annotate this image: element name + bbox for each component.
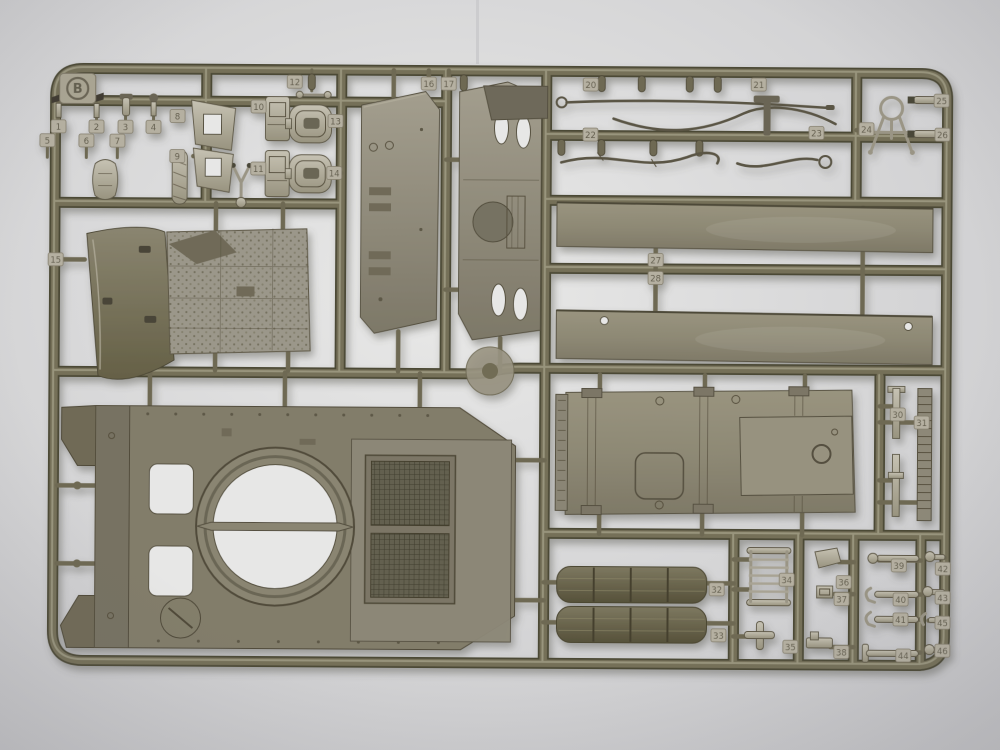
part-number-tag: 6 <box>79 134 94 147</box>
part-number-tag: 36 <box>836 576 851 589</box>
part-number-tag: 1 <box>51 120 66 133</box>
part-serrated-rack <box>917 389 932 521</box>
part-number-tag: 4 <box>146 120 161 133</box>
svg-text:11: 11 <box>253 165 264 175</box>
part-number-tag: 40 <box>893 593 908 606</box>
part-number-tag: 28 <box>648 271 663 284</box>
svg-text:26: 26 <box>937 131 948 141</box>
svg-text:20: 20 <box>585 81 596 91</box>
svg-text:37: 37 <box>836 595 847 605</box>
part-number-tag: 25 <box>934 94 949 107</box>
part-canteen-5 <box>93 160 118 200</box>
part-number-tag: 20 <box>583 78 598 91</box>
part-number-tag: 45 <box>935 616 950 629</box>
part-fender-28 <box>556 310 932 364</box>
part-box-37 <box>817 586 833 598</box>
part-cylinder-25 <box>908 96 938 103</box>
svg-text:2: 2 <box>94 123 99 133</box>
part-textured-plate <box>166 228 311 355</box>
part-number-tag: 17 <box>441 77 456 90</box>
svg-text:41: 41 <box>895 616 906 626</box>
part-fender-27 <box>557 202 933 252</box>
part-number-tag: 8 <box>170 109 185 122</box>
svg-text:27: 27 <box>650 256 661 266</box>
part-hatch-13 <box>285 105 331 143</box>
part-number-tag: 37 <box>834 593 849 606</box>
part-number-tag: 7 <box>110 134 125 147</box>
part-engine-deck <box>555 385 856 516</box>
part-log-bundle-33 <box>556 606 706 643</box>
part-number-tag: 27 <box>648 253 663 266</box>
svg-text:8: 8 <box>175 112 180 122</box>
svg-text:17: 17 <box>443 80 454 90</box>
svg-text:30: 30 <box>892 411 903 421</box>
part-number-tag: 9 <box>170 149 185 162</box>
part-number-tag: 10 <box>251 100 266 113</box>
part-cylinder-26 <box>907 130 937 137</box>
svg-text:12: 12 <box>289 78 300 88</box>
svg-text:21: 21 <box>753 81 764 91</box>
svg-text:46: 46 <box>937 647 948 657</box>
part-number-tag: 41 <box>893 613 908 626</box>
photo-stage: B 12345678910111213141516172021222324252… <box>0 0 1000 750</box>
part-number-tag: 39 <box>891 559 906 572</box>
svg-text:40: 40 <box>895 596 906 606</box>
part-number-tag: 44 <box>896 649 911 662</box>
part-long-plate <box>360 91 439 333</box>
svg-text:45: 45 <box>937 619 948 629</box>
part-hull-roof <box>60 405 515 650</box>
frame-letter-tag: B <box>60 73 96 103</box>
part-number-tag: 38 <box>834 646 849 659</box>
frame-letter: B <box>73 82 83 97</box>
part-number-tag: 34 <box>779 573 794 586</box>
svg-text:31: 31 <box>916 419 927 429</box>
part-number-tag: 23 <box>809 126 824 139</box>
svg-text:36: 36 <box>838 578 849 588</box>
svg-text:43: 43 <box>937 594 948 604</box>
part-number-tag: 24 <box>859 123 874 136</box>
svg-text:24: 24 <box>861 126 872 136</box>
svg-text:39: 39 <box>893 562 904 572</box>
svg-text:42: 42 <box>937 565 948 575</box>
part-number-tag: 26 <box>935 128 950 141</box>
part-number-tag: 5 <box>40 134 55 147</box>
svg-text:35: 35 <box>785 643 796 653</box>
svg-text:6: 6 <box>84 137 89 147</box>
part-number-tag: 32 <box>709 583 724 596</box>
part-bracket-8 <box>191 100 235 150</box>
part-number-tag: 12 <box>287 75 302 88</box>
svg-text:15: 15 <box>50 256 61 266</box>
part-number-tag: 33 <box>711 629 726 642</box>
svg-text:44: 44 <box>898 652 909 662</box>
svg-text:1: 1 <box>56 123 61 133</box>
svg-text:33: 33 <box>713 632 724 642</box>
part-number-tag: 2 <box>89 120 104 133</box>
runner-hub <box>466 347 514 395</box>
pin-collar <box>73 481 81 489</box>
svg-text:32: 32 <box>711 586 722 596</box>
part-curved-cover-15 <box>86 227 175 380</box>
svg-text:34: 34 <box>781 576 792 586</box>
svg-text:28: 28 <box>650 274 661 284</box>
part-number-tag: 11 <box>251 162 266 175</box>
part-number-tag: 3 <box>118 120 133 133</box>
svg-text:23: 23 <box>811 129 822 139</box>
part-bracket-9 <box>193 148 233 192</box>
svg-text:9: 9 <box>175 152 180 162</box>
svg-text:22: 22 <box>585 131 596 141</box>
part-gun-mount <box>458 82 542 340</box>
svg-text:25: 25 <box>936 97 947 107</box>
part-number-tag: 14 <box>327 166 342 179</box>
pin-collar <box>73 559 81 567</box>
part-number-tag: 21 <box>751 78 766 91</box>
svg-text:3: 3 <box>123 123 128 133</box>
part-number-tag: 35 <box>783 640 798 653</box>
svg-text:4: 4 <box>151 123 156 133</box>
part-log-bundle-32 <box>557 566 707 603</box>
svg-text:16: 16 <box>423 80 434 90</box>
part-hatch-14 <box>285 155 331 193</box>
part-number-tag: 15 <box>48 253 63 266</box>
svg-text:13: 13 <box>330 117 341 127</box>
part-number-tag: 31 <box>914 416 929 429</box>
background-seam <box>476 0 479 64</box>
sprue-photo: B 12345678910111213141516172021222324252… <box>0 0 1000 750</box>
svg-text:38: 38 <box>836 648 847 658</box>
svg-text:5: 5 <box>45 137 50 147</box>
svg-text:14: 14 <box>329 169 340 179</box>
part-number-tag: 30 <box>890 408 905 421</box>
part-number-tag: 16 <box>421 77 436 90</box>
part-number-tag: 42 <box>935 562 950 575</box>
part-number-tag: 43 <box>935 591 950 604</box>
part-number-tag: 22 <box>583 128 598 141</box>
svg-text:10: 10 <box>253 103 264 113</box>
part-number-tag: 46 <box>935 644 950 657</box>
svg-text:7: 7 <box>115 137 120 147</box>
part-number-tag: 13 <box>328 114 343 127</box>
part-flat-plate-small <box>484 86 548 120</box>
